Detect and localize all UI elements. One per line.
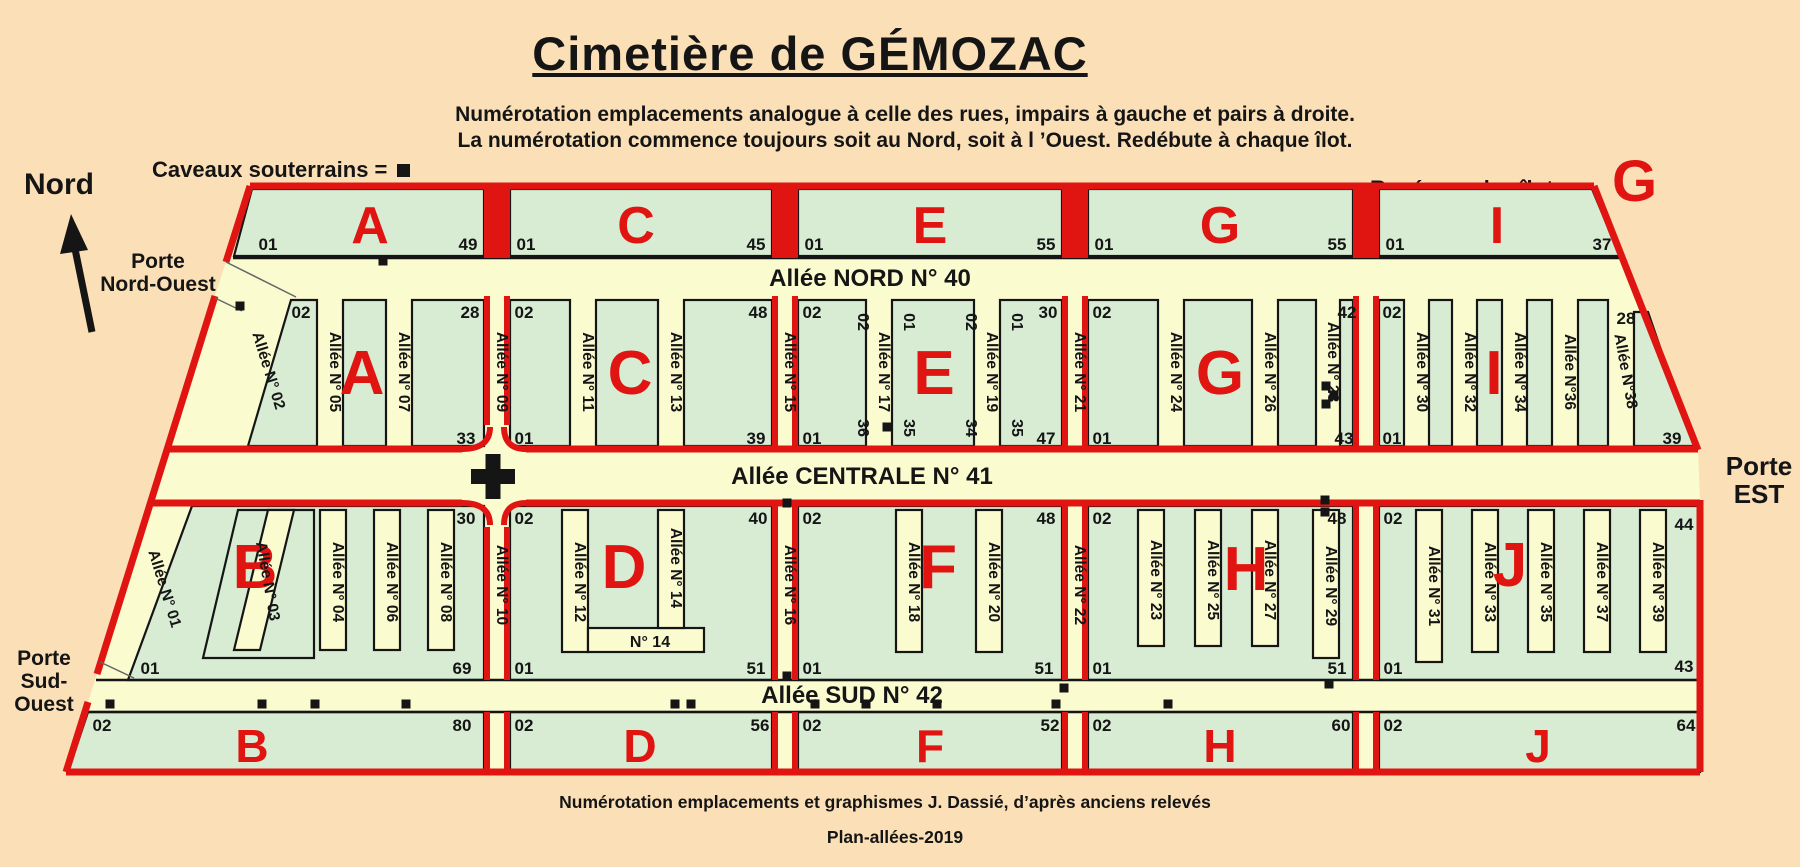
- corner-number: 01: [803, 429, 822, 448]
- alley-label: Allée N° 21: [1071, 332, 1088, 413]
- block-letter: C: [608, 339, 653, 408]
- corner-number: 02: [962, 313, 979, 331]
- strip-start-number: 01: [1095, 235, 1114, 254]
- divider-alley-red-line: [484, 527, 490, 680]
- divider-alley-red-line: [1373, 503, 1379, 680]
- alley-label: Allée N° 07: [395, 332, 412, 412]
- alley-north-label: Allée NORD N° 40: [769, 265, 971, 292]
- alley-label: Allée N° 22: [1071, 545, 1088, 625]
- caveau-marker-icon: [687, 700, 696, 709]
- caveau-marker-icon: [258, 700, 267, 709]
- strip-start-number: 02: [93, 716, 112, 735]
- divider-alley-red-line: [1082, 712, 1088, 775]
- corner-number: 01: [141, 659, 160, 678]
- alley-label: Allée N° 20: [985, 542, 1002, 622]
- alley-central-label: Allée CENTRALE N° 41: [731, 463, 993, 490]
- alley-label: Allée N° 17: [875, 332, 892, 412]
- block-letter: G: [1196, 339, 1244, 408]
- divider-alley-red-line: [772, 503, 778, 680]
- corner-number: 51: [747, 659, 766, 678]
- divider-alley-red-line: [792, 712, 798, 775]
- block-letter-bottom: D: [623, 720, 656, 772]
- alley-label: Allée N° 37: [1593, 542, 1610, 622]
- corner-number: 01: [1093, 429, 1112, 448]
- corner-number: 02: [1384, 509, 1403, 528]
- alley-label: Allée N° 11: [579, 332, 596, 412]
- corner-number: 01: [1093, 659, 1112, 678]
- caveau-marker-icon: [1052, 700, 1061, 709]
- north-arrow-icon: [74, 244, 92, 332]
- corner-number: 35: [1008, 419, 1025, 437]
- parcel-G-3: [1278, 300, 1316, 446]
- corner-number: 02: [803, 509, 822, 528]
- alley-south-label: Allée SUD N° 42: [761, 682, 943, 709]
- alley-label: Allée N° 12: [571, 542, 588, 622]
- divider-alley-red-line: [1062, 712, 1068, 775]
- alley-label: Allée N° 25: [1204, 540, 1221, 621]
- alley-label: Allée N° 15: [781, 332, 798, 413]
- caveau-marker-icon: [883, 423, 892, 432]
- alley-label: Allée N° 24: [1167, 332, 1184, 413]
- block-letter: F: [919, 533, 957, 602]
- caveau-marker-icon: [236, 302, 245, 311]
- parcel-I-5: [1578, 300, 1608, 446]
- strip-end-number: 80: [453, 716, 472, 735]
- divider-alley-top: [772, 186, 798, 258]
- corner-number: 01: [1008, 313, 1025, 331]
- strip-start-number: 02: [515, 716, 534, 735]
- block-letter-bottom: H: [1203, 720, 1236, 772]
- divider-alley-top: [484, 186, 510, 258]
- alley-label: N° 14: [630, 634, 670, 651]
- divider-alley-red-line: [772, 296, 778, 446]
- corner-number: 42: [1338, 303, 1357, 322]
- divider-alley-red-line: [484, 296, 490, 425]
- alley-label: Allée N° 30: [1413, 332, 1430, 412]
- corner-number: 69: [453, 659, 472, 678]
- corner-number: 33: [457, 429, 476, 448]
- corner-number: 02: [515, 303, 534, 322]
- strip-end-number: 60: [1332, 716, 1351, 735]
- corner-number: 02: [515, 509, 534, 528]
- divider-alley-red-line: [1353, 503, 1359, 680]
- corner-number: 43: [1335, 429, 1354, 448]
- corner-number: 48: [1328, 509, 1347, 528]
- divider-alley-red-line: [484, 712, 490, 775]
- alley-label: Allée N° 19: [983, 332, 1000, 413]
- block-letter: A: [340, 339, 385, 408]
- alley-label: Allée N° 08: [437, 542, 454, 623]
- strip-end-number: 37: [1593, 235, 1612, 254]
- corner-number: 39: [747, 429, 766, 448]
- block-letter: I: [1485, 339, 1502, 408]
- north-arrow-icon: [60, 214, 88, 254]
- alley-label: Allée N° 16: [781, 545, 798, 626]
- alley-label: Allée N° 29: [1322, 546, 1339, 627]
- caveau-marker-icon: [379, 257, 388, 266]
- strip-start-number: 01: [259, 235, 278, 254]
- divider-alley-red-line: [1062, 503, 1068, 680]
- central-cross-icon: [486, 454, 501, 499]
- alley-label: Allée N° 28: [1324, 322, 1341, 403]
- corner-number: 43: [1675, 657, 1694, 676]
- parcel-strip-bottom-B: [68, 712, 484, 772]
- alley-label: Allée N° 26: [1261, 332, 1278, 413]
- strip-start-number: 01: [1386, 235, 1405, 254]
- corner-number: 02: [1093, 303, 1112, 322]
- parcel-I-2: [1429, 300, 1452, 446]
- alley-label: Allée N° 34: [1511, 332, 1528, 413]
- alley-label: Allée N° 39: [1649, 542, 1666, 623]
- corner-number: 01: [515, 659, 534, 678]
- corner-number: 30: [1039, 303, 1058, 322]
- corner-number: 02: [1383, 303, 1402, 322]
- caveau-marker-icon: [1164, 700, 1173, 709]
- corner-number: 44: [1675, 515, 1694, 534]
- alley-label: Allée N° 10: [493, 545, 510, 625]
- alley-label: Allée N° 23: [1147, 540, 1164, 621]
- corner-number: 51: [1035, 659, 1054, 678]
- corner-number: 39: [1663, 429, 1682, 448]
- alley-label: Allée N° 18: [905, 542, 922, 623]
- corner-number: 47: [1037, 429, 1056, 448]
- corner-number: 01: [515, 429, 534, 448]
- corner-number: 02: [1093, 509, 1112, 528]
- strip-start-number: 02: [1384, 716, 1403, 735]
- corner-number: 36: [854, 419, 871, 437]
- corner-number: 40: [749, 509, 768, 528]
- block-letter-top: I: [1490, 197, 1504, 255]
- parcel-I-4: [1527, 300, 1552, 446]
- divider-alley-red-line: [772, 712, 778, 775]
- caveau-marker-icon: [106, 700, 115, 709]
- block-letter-top: G: [1200, 197, 1240, 255]
- corner-number: 28: [1617, 309, 1636, 328]
- corner-number: 51: [1328, 659, 1347, 678]
- strip-end-number: 64: [1677, 716, 1696, 735]
- block-letter-top: E: [913, 197, 948, 255]
- caveau-marker-icon: [311, 700, 320, 709]
- alley-label: Allée N° 32: [1461, 332, 1478, 412]
- caveau-marker-icon: [1325, 680, 1334, 689]
- corner-number: 28: [461, 303, 480, 322]
- strip-end-number: 52: [1041, 716, 1060, 735]
- block-letter-bottom: J: [1525, 720, 1551, 772]
- block-letter-bottom: B: [235, 720, 268, 772]
- corner-number: 01: [900, 313, 917, 331]
- alley-label: Allée N° 35: [1537, 542, 1554, 623]
- strip-end-number: 55: [1037, 235, 1056, 254]
- block-letter-bottom: F: [916, 720, 944, 772]
- divider-alley-red-line: [504, 712, 510, 775]
- divider-alley-red-line: [1373, 296, 1379, 446]
- corner-number: 48: [1037, 509, 1056, 528]
- caveau-marker-icon: [1060, 684, 1069, 693]
- strip-end-number: 45: [747, 235, 766, 254]
- alley-label: Allée N° 13: [667, 332, 684, 413]
- alley-label: Allée N° 05: [326, 332, 343, 413]
- caveau-marker-icon: [783, 499, 792, 508]
- corner-number: 02: [292, 303, 311, 322]
- corner-number: 01: [1383, 429, 1402, 448]
- block-letter-top: C: [617, 197, 655, 255]
- divider-alley-red-line: [1373, 712, 1379, 775]
- caveau-marker-icon: [671, 700, 680, 709]
- block-letter-top: A: [351, 197, 389, 255]
- corner-number: 01: [803, 659, 822, 678]
- strip-end-number: 56: [751, 716, 770, 735]
- corner-number: 35: [900, 419, 917, 437]
- strip-end-number: 49: [459, 235, 478, 254]
- strip-start-number: 01: [517, 235, 536, 254]
- corner-number: 02: [803, 303, 822, 322]
- corner-number: 01: [1384, 659, 1403, 678]
- alley-label: Allée N° 33: [1481, 542, 1498, 623]
- alley-label: Allée N°36: [1561, 334, 1578, 410]
- corner-number: 34: [962, 419, 979, 437]
- divider-alley-top: [1353, 186, 1379, 258]
- block-letter: E: [913, 339, 954, 408]
- cemetery-plan-svg: 0149A0145C0155E0155G0137I0280B0256D0252F…: [0, 0, 1800, 867]
- corner-number: 02: [854, 313, 871, 331]
- divider-alley-red-line: [1062, 296, 1068, 446]
- corner-number: 30: [457, 509, 476, 528]
- alley-label: Allée N° 09: [493, 332, 510, 413]
- strip-start-number: 01: [805, 235, 824, 254]
- caveau-marker-icon: [783, 672, 792, 681]
- alley-label: Allée N° 27: [1261, 540, 1278, 620]
- alley-label: Allée N° 31: [1425, 546, 1442, 627]
- caveau-marker-icon: [1321, 496, 1330, 505]
- divider-alley-top: [1062, 186, 1088, 258]
- block-letter: D: [602, 533, 647, 602]
- strip-start-number: 02: [803, 716, 822, 735]
- corner-number: 48: [749, 303, 768, 322]
- strip-end-number: 55: [1328, 235, 1347, 254]
- alley-label: Allée N° 06: [383, 542, 400, 623]
- strip-start-number: 02: [1093, 716, 1112, 735]
- alley-label: Allée N° 04: [329, 542, 346, 623]
- divider-alley-red-line: [1353, 712, 1359, 775]
- alley-label: Allée N° 14: [667, 528, 684, 609]
- caveau-marker-icon: [402, 700, 411, 709]
